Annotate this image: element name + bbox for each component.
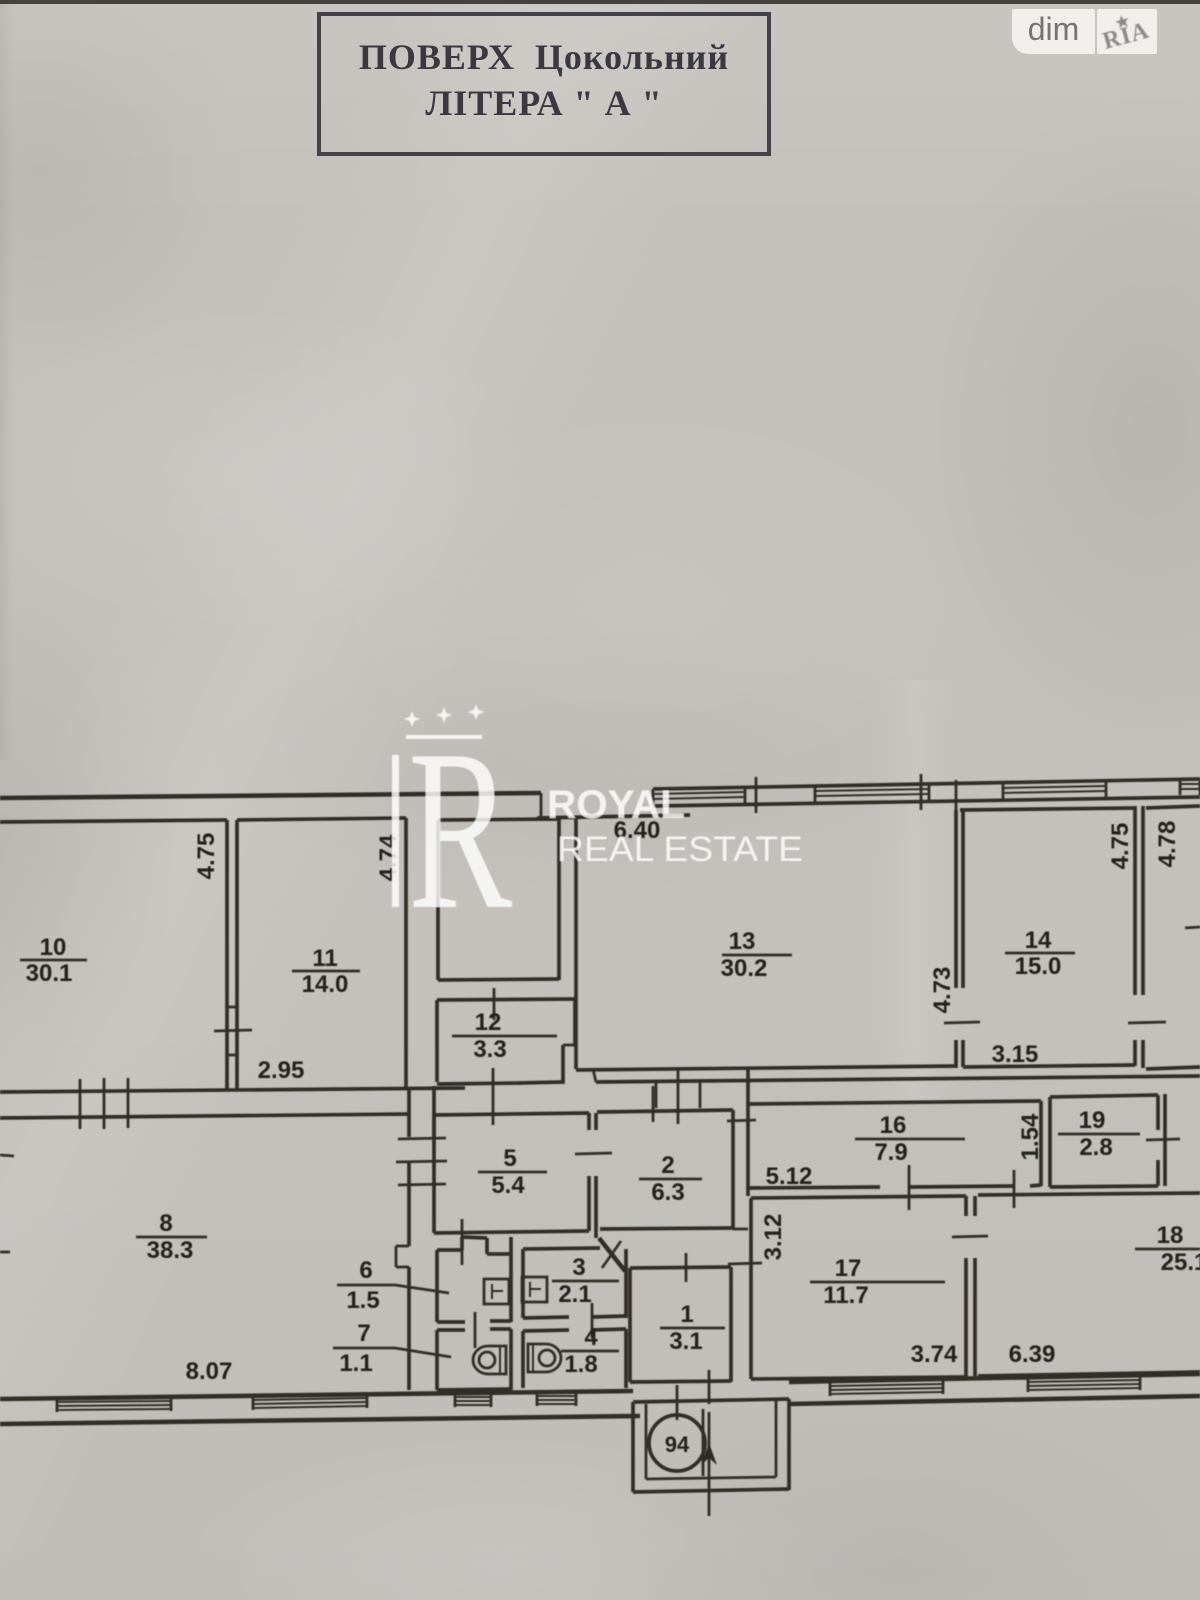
svg-text:5: 5 (503, 1145, 516, 1172)
svg-text:3.12: 3.12 (760, 1214, 787, 1261)
svg-text:3.74: 3.74 (911, 1341, 958, 1368)
svg-text:REAL ESTATE: REAL ESTATE (557, 830, 803, 869)
svg-text:2.8: 2.8 (1079, 1134, 1112, 1161)
svg-text:2.95: 2.95 (258, 1057, 305, 1084)
svg-text:25.1: 25.1 (1161, 1249, 1200, 1276)
svg-text:4.73: 4.73 (929, 967, 956, 1014)
svg-text:3: 3 (572, 1254, 585, 1281)
svg-text:1: 1 (680, 1301, 693, 1328)
svg-text:11.7: 11.7 (823, 1282, 868, 1309)
svg-text:14.0: 14.0 (302, 971, 349, 998)
svg-text:6.39: 6.39 (1009, 1341, 1056, 1368)
svg-text:15.0: 15.0 (1015, 953, 1062, 980)
svg-text:1.54: 1.54 (1017, 1113, 1044, 1160)
svg-text:11: 11 (312, 945, 337, 972)
svg-text:14: 14 (1025, 927, 1052, 954)
svg-text:3.3: 3.3 (473, 1036, 506, 1063)
svg-text:16: 16 (880, 1112, 907, 1139)
svg-text:12: 12 (475, 1009, 502, 1036)
svg-text:R: R (408, 702, 512, 957)
svg-text:5.4: 5.4 (491, 1172, 525, 1199)
svg-text:3.1: 3.1 (669, 1328, 702, 1355)
svg-text:ROYAL: ROYAL (547, 783, 685, 827)
svg-text:18: 18 (1157, 1222, 1184, 1249)
svg-text:4: 4 (584, 1324, 598, 1351)
svg-text:1.5: 1.5 (346, 1287, 379, 1314)
svg-text:4.78: 4.78 (1154, 821, 1181, 868)
svg-text:17: 17 (835, 1255, 862, 1282)
svg-text:8.07: 8.07 (186, 1358, 233, 1385)
svg-text:7.9: 7.9 (874, 1139, 907, 1166)
svg-text:38.3: 38.3 (147, 1237, 194, 1264)
svg-text:30.1: 30.1 (26, 960, 73, 987)
svg-text:5.12: 5.12 (766, 1163, 813, 1190)
svg-text:4.75: 4.75 (1107, 823, 1134, 870)
svg-text:8: 8 (159, 1210, 172, 1237)
svg-text:4.75: 4.75 (193, 833, 220, 880)
svg-text:19: 19 (1079, 1107, 1106, 1134)
svg-text:2.1: 2.1 (558, 1281, 591, 1308)
svg-text:30.2: 30.2 (721, 955, 768, 982)
svg-text:10: 10 (40, 934, 67, 961)
svg-text:1.8: 1.8 (564, 1351, 597, 1378)
svg-text:13: 13 (729, 928, 756, 955)
svg-text:6: 6 (359, 1257, 372, 1284)
svg-text:94: 94 (665, 1432, 690, 1457)
svg-text:6.3: 6.3 (651, 1179, 684, 1206)
svg-text:7: 7 (357, 1320, 370, 1347)
svg-text:1.1: 1.1 (339, 1350, 372, 1377)
svg-text:3.15: 3.15 (992, 1041, 1039, 1068)
svg-text:2: 2 (661, 1152, 674, 1179)
